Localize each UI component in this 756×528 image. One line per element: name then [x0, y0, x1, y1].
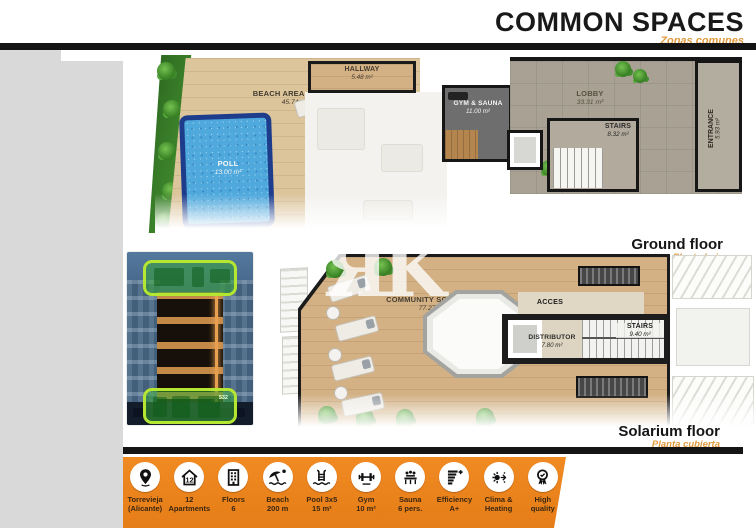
climate-icon: [484, 462, 514, 492]
solarium-floor-plan: ЯK COMMUNITY SOLARIUM 77.27 m² ACCES DIS…: [278, 250, 756, 434]
plant-icon: [158, 142, 176, 160]
feature-apartments: 12 12Apartments: [167, 462, 211, 513]
gym-equipment-icon: [448, 92, 468, 100]
roof-stairs-pattern: [672, 255, 752, 299]
page: COMMON SPACES Zonas comunes BEACH AREA &…: [0, 0, 756, 528]
beach-icon: [263, 462, 293, 492]
brand-watermark: ЯK: [324, 234, 440, 308]
feature-location: Torrevieja(Alicante): [123, 462, 167, 513]
feature-gym: Gym10 m²: [344, 462, 388, 513]
quality-icon: [528, 462, 558, 492]
side-table: [328, 348, 342, 362]
header: COMMON SPACES Zonas comunes: [495, 8, 744, 47]
feature-quality: Highquality: [521, 462, 565, 513]
features-bar: Torrevieja(Alicante) 12 12Apartments Flo…: [123, 457, 566, 528]
entrance-corridor: ENTRANCE 5.93 m²: [695, 60, 742, 192]
feature-pool: Pool 3x515 m²: [300, 462, 344, 513]
facade-number: 532: [219, 395, 228, 401]
building-photo: 532: [127, 252, 253, 425]
gym-icon: [351, 462, 381, 492]
feature-sauna: Sauna6 pers.: [388, 462, 432, 513]
building-floors-icon: [218, 462, 248, 492]
table-outline: [381, 144, 423, 172]
feature-floors: Floors6: [211, 462, 255, 513]
bed-outline: [317, 108, 365, 150]
distributor-floor: [542, 320, 582, 358]
ac-unit: [578, 266, 640, 286]
page-title: COMMON SPACES: [495, 8, 744, 36]
efficiency-icon: [439, 462, 469, 492]
sauna-benches: [445, 130, 478, 159]
plant-icon: [157, 62, 175, 80]
stair-treads: [553, 148, 603, 188]
roof-plain: [676, 308, 750, 366]
feature-climate: Clima &Heating: [477, 462, 521, 513]
ground-floor-plan: BEACH AREA & PATIO 45.74 m² POLL 13.00 m…: [155, 52, 747, 236]
stair-treads: [582, 320, 664, 358]
elevator: [507, 130, 543, 170]
feature-efficiency: EfficiencyA+: [432, 462, 476, 513]
plant-icon: [615, 61, 631, 77]
top-divider: [0, 43, 756, 50]
apartments-icon: 12: [174, 462, 204, 492]
room-label-entrance: ENTRANCE 5.93 m²: [708, 81, 723, 177]
hallway-room: [308, 61, 416, 93]
svg-text:12: 12: [185, 475, 193, 484]
solarium-highlight-box: [143, 260, 237, 296]
plant-icon: [633, 69, 647, 83]
ground-floor-highlight-box: 532: [143, 388, 237, 424]
feature-beach: Beach200 m: [256, 462, 300, 513]
location-pin-icon: [130, 462, 160, 492]
elevator: [508, 320, 542, 358]
left-gray-panel: [0, 61, 123, 528]
bottom-divider: [123, 447, 743, 454]
sauna-icon: [395, 462, 425, 492]
solarium-floor-caption: Solarium floor Planta cubierta: [618, 424, 720, 450]
left-gray-panel-notch: [0, 50, 61, 62]
plant-icon: [163, 100, 181, 118]
pool-icon: [307, 462, 337, 492]
plan-fade: [155, 194, 747, 236]
